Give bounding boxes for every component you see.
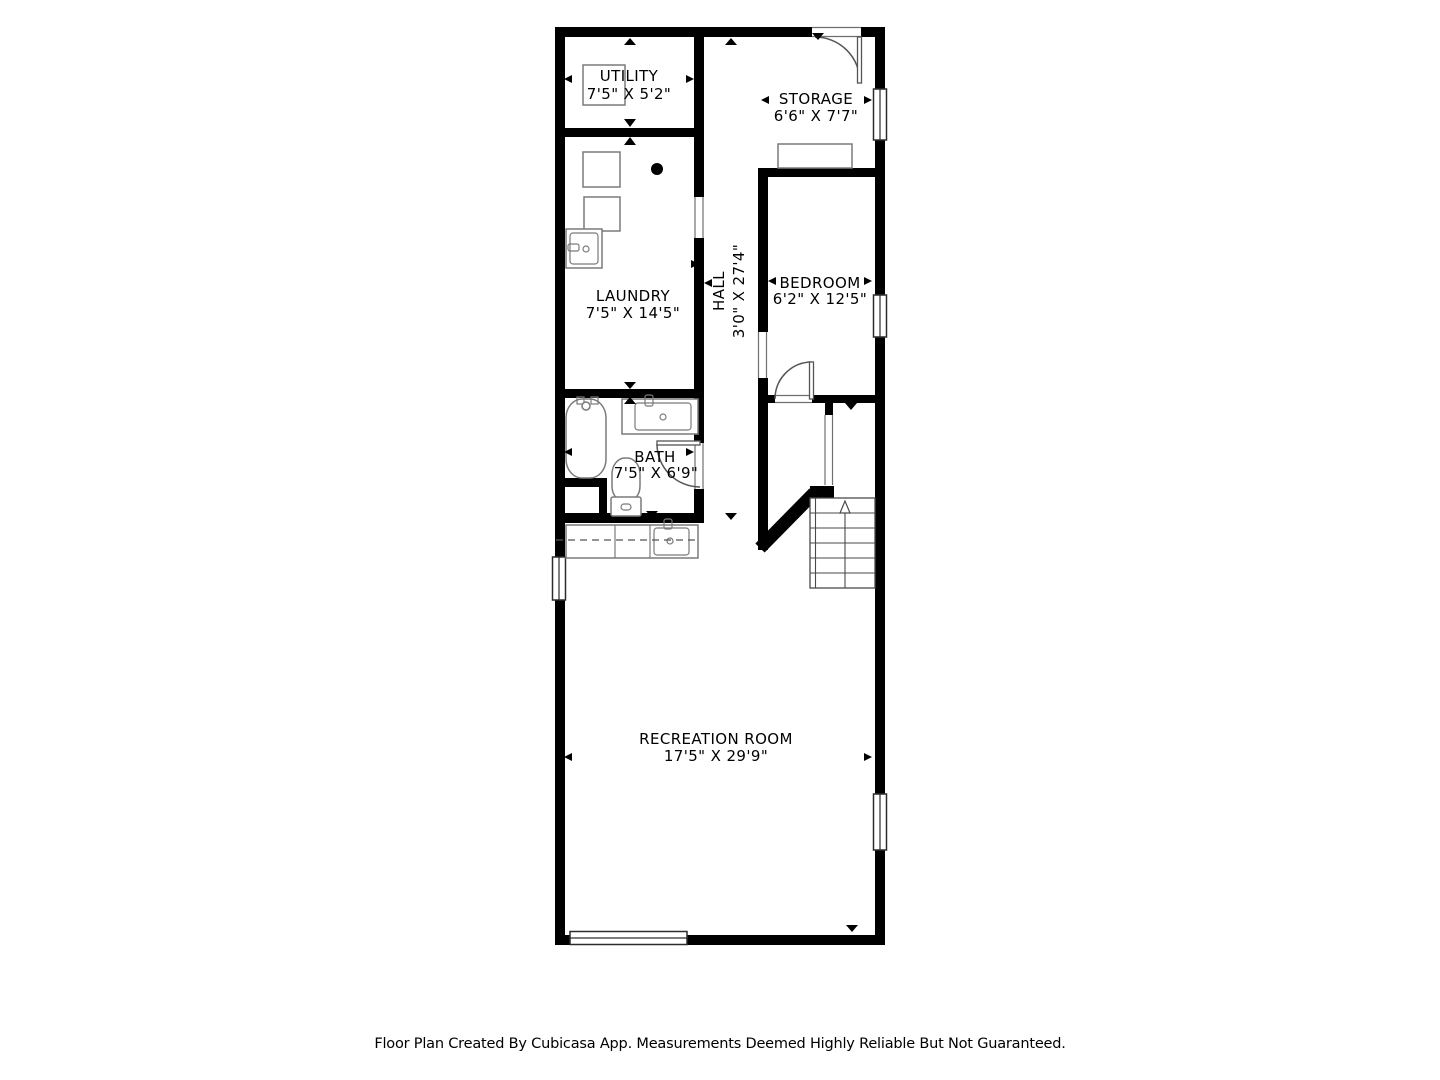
laundry-opening (694, 197, 704, 238)
hall-dimensions: 3'0" X 27'4" (730, 244, 748, 338)
storage-shelf-icon (778, 144, 852, 168)
floor-plan-drawing: UTILITY 7'5" X 5'2" STORAGE 6'6" X 7'7" … (0, 0, 1440, 1080)
bedroom-door (775, 362, 814, 404)
laundry-dimensions: 7'5" X 14'5" (586, 304, 680, 322)
window-bottom (570, 932, 687, 945)
laundry-sink-icon (566, 229, 602, 268)
landing-opening (824, 415, 834, 485)
storage-label: STORAGE (779, 90, 853, 108)
floor-drain-icon (651, 163, 663, 175)
storage-dimensions: 6'6" X 7'7" (774, 107, 858, 125)
laundry-dryer-icon (584, 197, 620, 231)
bathtub-icon (566, 397, 606, 478)
recreation-room-label: RECREATION ROOM (639, 730, 793, 748)
window-bedroom (874, 295, 887, 337)
recreation-counter-sink-icon (556, 519, 698, 558)
bedroom-side-opening (757, 332, 768, 378)
bath-dimensions: 7'5" X 6'9" (614, 464, 698, 482)
bedroom-dimensions: 6'2" X 12'5" (773, 290, 867, 308)
footer-disclaimer: Floor Plan Created By Cubicasa App. Meas… (374, 1036, 1065, 1052)
window-left (553, 557, 566, 600)
bath-vanity-sink-icon (622, 395, 698, 434)
laundry-washer-icon (583, 152, 620, 187)
floor-plan-page: UTILITY 7'5" X 5'2" STORAGE 6'6" X 7'7" … (0, 0, 1440, 1080)
hall-label: HALL (710, 271, 728, 311)
window-storage (874, 89, 887, 140)
window-recreation (874, 794, 887, 850)
laundry-label: LAUNDRY (596, 287, 671, 305)
stairs (810, 498, 875, 588)
recreation-room-dimensions: 17'5" X 29'9" (664, 747, 768, 765)
utility-label: UTILITY (600, 67, 659, 85)
utility-dimensions: 7'5" X 5'2" (587, 85, 671, 103)
